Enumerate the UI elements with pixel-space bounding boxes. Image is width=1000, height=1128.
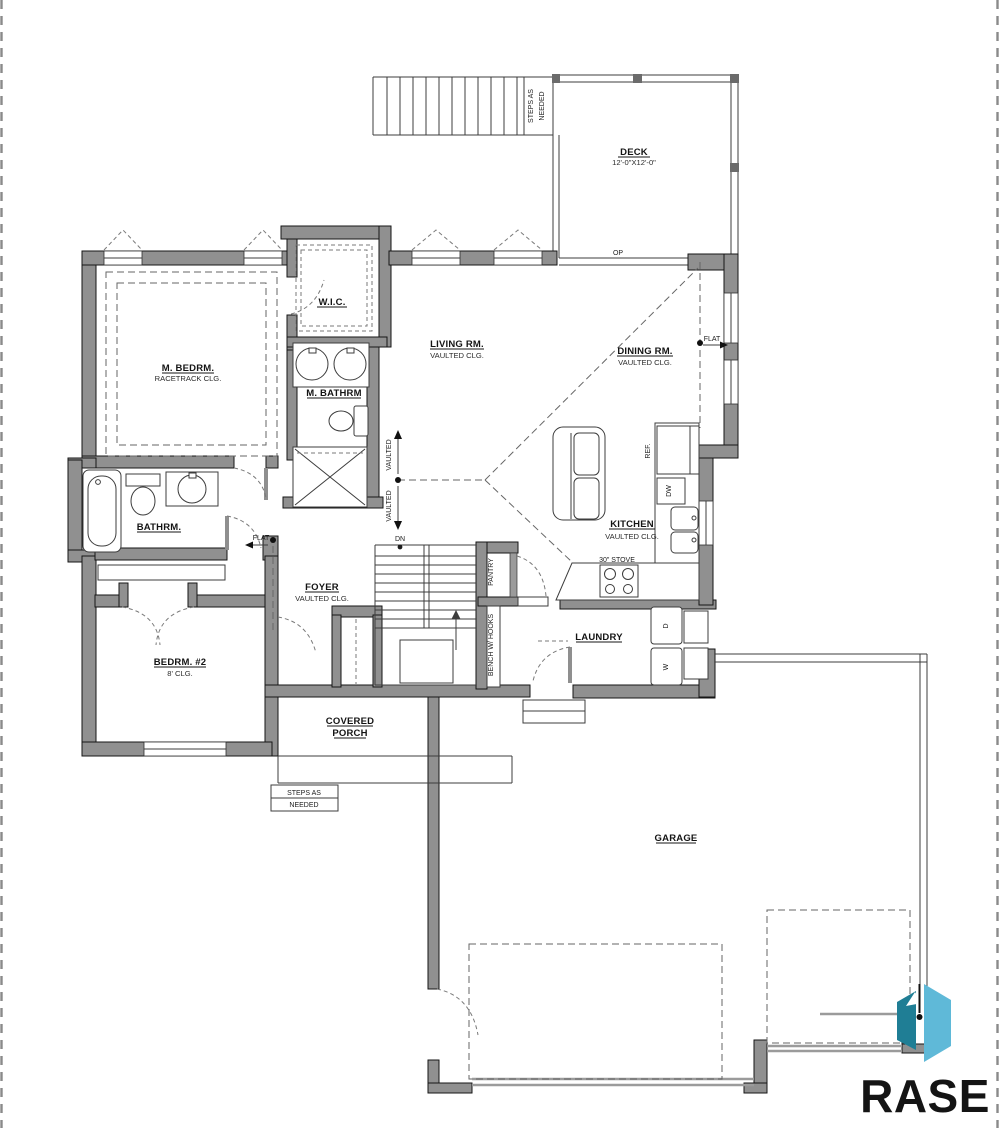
vaulted-up-label: VAULTED: [386, 439, 393, 470]
master-bath-fixtures: [293, 343, 369, 507]
foyer-clg: VAULTED CLG.: [295, 594, 349, 603]
master-bedroom-label: M. BEDRM.: [162, 363, 214, 374]
living-clg: VAULTED CLG.: [430, 351, 484, 360]
ref-label: REF.: [645, 443, 652, 458]
garage-label: GARAGE: [655, 833, 698, 844]
sofa: [553, 427, 605, 520]
page-border: [2, 0, 998, 1128]
porch-label-line1: COVERED: [326, 716, 374, 727]
master-bedroom-clg: RACETRACK CLG.: [155, 374, 222, 383]
laundry-appliances: [538, 607, 708, 685]
basement-stairs: [375, 545, 476, 685]
steps-top-line2: NEEDED: [539, 91, 546, 120]
pantry-label: PANTRY: [488, 558, 495, 586]
master-bath-label: M. BATHRM: [306, 388, 361, 399]
floor-plan-page: DECK 12'-0"X12'-0" STEPS AS NEEDED OP LI…: [0, 0, 1000, 1128]
dryer-label: D: [663, 623, 670, 628]
wic-label: W.I.C.: [318, 297, 345, 308]
bathroom-label: BATHRM.: [137, 522, 182, 533]
deck-structure: [373, 74, 739, 265]
washer-label: W: [663, 663, 670, 670]
steps-top-line1: STEPS AS: [528, 89, 535, 123]
flat-right-label: FLAT: [704, 336, 721, 343]
garage-doors: [472, 1014, 902, 1085]
kitchen-label: KITCHEN: [610, 519, 654, 530]
garage-thin-walls: [715, 654, 927, 1013]
op-label: OP: [613, 250, 623, 257]
dw-label: DW: [666, 485, 673, 497]
dining-clg: VAULTED CLG.: [618, 358, 672, 367]
kitchen-clg: VAULTED CLG.: [605, 532, 659, 541]
deck-size: 12'-0"X12'-0": [612, 158, 656, 167]
rase-logo: RASE: [860, 984, 990, 1122]
porch-label-line2: PORCH: [332, 728, 367, 739]
foyer-label: FOYER: [305, 582, 339, 593]
living-label: LIVING RM.: [430, 339, 484, 350]
vaulted-down-label: VAULTED: [386, 490, 393, 521]
flat-left-label: FLAT: [253, 535, 270, 542]
bench-label: BENCH W/ HOOKS: [488, 614, 495, 677]
steps-bottom-line1: STEPS AS: [287, 790, 321, 797]
deck-label: DECK: [620, 147, 648, 158]
dn-label: DN: [395, 536, 405, 543]
steps-bottom-line2: NEEDED: [289, 802, 318, 809]
bedroom2-label: BEDRM. #2: [154, 657, 206, 668]
stove-label: 30" STOVE: [599, 557, 635, 564]
dining-label: DINING RM.: [617, 346, 672, 357]
logo-text: RASE: [860, 1070, 990, 1122]
floor-plan-drawing: DECK 12'-0"X12'-0" STEPS AS NEEDED OP LI…: [0, 0, 1000, 1128]
laundry-label: LAUNDRY: [575, 632, 623, 643]
logo-icon-light: [924, 984, 951, 1062]
bedroom2-clg: 8' CLG.: [167, 669, 193, 678]
hall-bath-fixtures: [83, 470, 218, 552]
